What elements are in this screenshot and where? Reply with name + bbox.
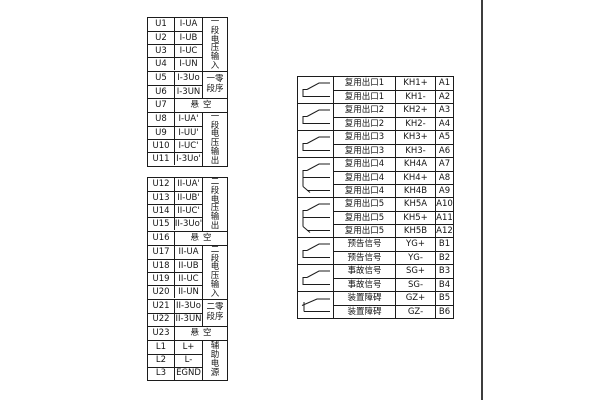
terminal-id-cell: B2: [435, 252, 453, 264]
terminal-row: L3EGND: [148, 367, 202, 380]
normally-open-contact-icon: [298, 131, 333, 157]
signal-code-cell: SG+: [395, 265, 435, 278]
signal-name-cell: I-UC': [174, 140, 202, 152]
signal-label-cell: 复用出口3: [333, 145, 395, 157]
terminal-row: U12II-UA': [148, 178, 202, 191]
group-label: 辅助电源: [210, 342, 220, 377]
terminal-group: U23悬空: [148, 326, 227, 340]
signal-name-cell: I-3UN: [174, 86, 202, 98]
output-row: 复用出口3KH3+A5: [333, 131, 453, 144]
terminal-id-cell: U8: [148, 113, 174, 126]
signal-name-cell: I-UA': [174, 113, 202, 126]
signal-name-cell: 悬空: [174, 232, 227, 245]
output-group: 复用出口3KH3+A5复用出口3KH3-A6: [298, 130, 453, 157]
signal-label-cell: 复用出口4: [333, 158, 395, 171]
output-row: 复用出口5KH5+A11: [333, 211, 453, 224]
output-rows: 装置障碍GZ+B5装置障碍GZ-B6: [333, 292, 453, 318]
signal-label-cell: 复用出口2: [333, 118, 395, 130]
normally-open-contact-icon: [298, 77, 333, 103]
terminal-id-cell: U3: [148, 45, 174, 57]
terminal-row: U9I-UU': [148, 126, 202, 139]
terminal-row: U10I-UC': [148, 139, 202, 152]
group-label: 一段电压输入: [210, 18, 220, 71]
terminal-row: U23悬空: [148, 327, 227, 340]
signal-name-cell: I-UB: [174, 32, 202, 44]
output-group: 事故信号SG+B3事故信号SG-B4: [298, 264, 453, 291]
relay-contact-symbol-cell: [298, 238, 333, 264]
normally-open-contact-icon: [298, 238, 333, 264]
terminal-group: U8I-UA'U9I-UU'U10I-UC'U11I-3Uo'一段电压输出: [148, 112, 227, 166]
signal-code-cell: KH3-: [395, 145, 435, 157]
signal-label-cell: 复用出口5: [333, 212, 395, 224]
terminal-id-cell: U5: [148, 72, 174, 85]
terminal-group: U21II-3UoU22II-3UN二零 段序: [148, 299, 227, 326]
signal-code-cell: KH1-: [395, 91, 435, 103]
terminal-row: L2L-: [148, 354, 202, 367]
signal-code-cell: KH2-: [395, 118, 435, 130]
signal-name-cell: I-3Uo: [174, 72, 202, 85]
terminal-id-cell: B5: [435, 292, 453, 305]
terminal-id-cell: A1: [435, 77, 453, 90]
changeover-contact-icon: [298, 158, 333, 197]
terminal-id-cell: U16: [148, 232, 174, 245]
terminal-row: U15II-3Uo': [148, 217, 202, 230]
terminal-id-cell: U11: [148, 153, 174, 165]
terminal-row: U3I-UC: [148, 44, 202, 57]
group-label: 二段电压输入: [210, 246, 220, 299]
group-label: 二段电压输出: [210, 178, 220, 231]
output-row: 事故信号SG+B3: [333, 265, 453, 278]
signal-label-cell: 预告信号: [333, 252, 395, 264]
output-group: 装置障碍GZ+B5装置障碍GZ-B6: [298, 291, 453, 318]
terminal-id-cell: A11: [435, 212, 453, 224]
output-row: 复用出口5KH5BA12: [333, 224, 453, 237]
output-row: 事故信号SG-B4: [333, 278, 453, 291]
terminal-id-cell: B6: [435, 306, 453, 318]
terminal-row: U5I-3Uo: [148, 72, 202, 85]
terminal-rows: U21II-3UoU22II-3UN: [148, 300, 202, 326]
voltage-terminal-table-2: U12II-UA'U13II-UB'U14II-UC'U15II-3Uo'二段电…: [147, 177, 228, 381]
terminal-group: U1I-UAU2I-UBU3I-UCU4I-UN一段电压输入: [148, 18, 227, 71]
terminal-id-cell: U12: [148, 178, 174, 191]
terminal-id-cell: L2: [148, 355, 174, 367]
terminal-id-cell: A9: [435, 185, 453, 197]
terminal-id-cell: U9: [148, 127, 174, 139]
output-rows: 复用出口4KH4AA7复用出口4KH4+A8复用出口4KH4BA9: [333, 158, 453, 197]
terminal-rows: L1L+L2L-L3EGND: [148, 341, 202, 380]
signal-name-cell: II-UN: [174, 286, 202, 298]
output-rows: 事故信号SG+B3事故信号SG-B4: [333, 265, 453, 291]
signal-name-cell: II-UA: [174, 246, 202, 259]
terminal-id-cell: U7: [148, 99, 174, 112]
terminal-rows: U5I-3UoU6I-3UN: [148, 72, 202, 98]
signal-code-cell: GZ-: [395, 306, 435, 318]
terminal-row: U11I-3Uo': [148, 152, 202, 165]
group-label-cell: 一段电压输入: [202, 18, 227, 71]
normally-open-contact-icon: [298, 104, 333, 130]
terminal-id-cell: A4: [435, 118, 453, 130]
terminal-id-cell: U20: [148, 286, 174, 298]
terminal-id-cell: A6: [435, 145, 453, 157]
signal-code-cell: KH5A: [395, 198, 435, 211]
terminal-id-cell: B1: [435, 238, 453, 251]
terminal-row: U6I-3UN: [148, 85, 202, 98]
signal-name-cell: L+: [174, 341, 202, 354]
terminal-id-cell: U23: [148, 327, 174, 340]
output-group: 复用出口4KH4AA7复用出口4KH4+A8复用出口4KH4BA9: [298, 157, 453, 197]
terminal-rows: U23悬空: [148, 327, 227, 340]
output-row: 复用出口4KH4BA9: [333, 184, 453, 197]
output-rows: 复用出口5KH5AA10复用出口5KH5+A11复用出口5KH5BA12: [333, 198, 453, 237]
signal-name-cell: II-UB': [174, 192, 202, 204]
relay-contact-symbol-cell: [298, 77, 333, 103]
output-row: 复用出口2KH2+A3: [333, 104, 453, 117]
output-group: 复用出口2KH2+A3复用出口2KH2-A4: [298, 103, 453, 130]
group-label-cell: 二段电压输出: [202, 178, 227, 231]
signal-code-cell: KH4B: [395, 185, 435, 197]
signal-label-cell: 复用出口1: [333, 91, 395, 103]
terminal-row: L1L+: [148, 341, 202, 354]
signal-code-cell: YG+: [395, 238, 435, 251]
terminal-id-cell: A5: [435, 131, 453, 144]
terminal-group: U12II-UA'U13II-UB'U14II-UC'U15II-3Uo'二段电…: [148, 178, 227, 231]
signal-name-cell: I-UA: [174, 18, 202, 31]
terminal-row: U14II-UC': [148, 204, 202, 217]
signal-name-cell: II-3Uo': [174, 218, 202, 230]
relay-contact-symbol-cell: [298, 198, 333, 237]
signal-label-cell: 复用出口1: [333, 77, 395, 90]
terminal-group: U16悬空: [148, 231, 227, 245]
signal-name-cell: 悬空: [174, 327, 227, 340]
terminal-rows: U1I-UAU2I-UBU3I-UCU4I-UN: [148, 18, 202, 71]
terminal-group: U7悬空: [148, 98, 227, 112]
terminal-rows: U12II-UA'U13II-UB'U14II-UC'U15II-3Uo': [148, 178, 202, 231]
group-label-cell: 一段电压输出: [202, 113, 227, 166]
signal-code-cell: KH5+: [395, 212, 435, 224]
group-label: 二零 段序: [206, 303, 223, 322]
signal-name-cell: I-3Uo': [174, 153, 202, 165]
terminal-id-cell: U15: [148, 218, 174, 230]
group-label: 一零 段序: [206, 75, 223, 94]
signal-name-cell: EGND: [174, 368, 202, 380]
signal-label-cell: 装置障碍: [333, 306, 395, 318]
terminal-row: U8I-UA': [148, 113, 202, 126]
output-rows: 预告信号YG+B1预告信号YG-B2: [333, 238, 453, 264]
normally-closed-contact-icon: [298, 292, 333, 318]
relay-contact-symbol-cell: [298, 265, 333, 291]
relay-contact-symbol-cell: [298, 131, 333, 157]
signal-label-cell: 复用出口5: [333, 198, 395, 211]
terminal-row: U2I-UB: [148, 31, 202, 44]
signal-name-cell: II-UB: [174, 260, 202, 272]
relay-contact-symbol-cell: [298, 292, 333, 318]
terminal-id-cell: L3: [148, 368, 174, 380]
output-rows: 复用出口1KH1+A1复用出口1KH1-A2: [333, 77, 453, 103]
terminal-id-cell: B3: [435, 265, 453, 278]
terminal-id-cell: U10: [148, 140, 174, 152]
group-label-cell: 二零 段序: [202, 300, 227, 326]
signal-name-cell: 悬空: [174, 99, 227, 112]
signal-label-cell: 复用出口4: [333, 172, 395, 184]
signal-name-cell: I-UU': [174, 127, 202, 139]
terminal-row: U18II-UB: [148, 259, 202, 272]
group-label: 一段电压输出: [210, 113, 220, 166]
signal-name-cell: I-UN: [174, 58, 202, 70]
signal-label-cell: 事故信号: [333, 279, 395, 291]
terminal-id-cell: U19: [148, 273, 174, 285]
terminal-row: U16悬空: [148, 232, 227, 245]
signal-name-cell: II-UA': [174, 178, 202, 191]
terminal-id-cell: U2: [148, 32, 174, 44]
output-group: 复用出口1KH1+A1复用出口1KH1-A2: [298, 77, 453, 103]
terminal-id-cell: U22: [148, 314, 174, 326]
terminal-group: U17II-UAU18II-UBU19II-UCU20II-UN二段电压输入: [148, 245, 227, 299]
terminal-id-cell: U1: [148, 18, 174, 31]
relay-contact-symbol-cell: [298, 104, 333, 130]
terminal-id-cell: A2: [435, 91, 453, 103]
output-rows: 复用出口2KH2+A3复用出口2KH2-A4: [333, 104, 453, 130]
output-row: 预告信号YG-B2: [333, 251, 453, 264]
normally-open-contact-icon: [298, 265, 333, 291]
terminal-row: U22II-3UN: [148, 313, 202, 326]
terminal-group: L1L+L2L-L3EGND辅助电源: [148, 340, 227, 380]
group-label-cell: 一零 段序: [202, 72, 227, 98]
terminal-rows: U7悬空: [148, 99, 227, 112]
terminal-id-cell: A3: [435, 104, 453, 117]
signal-label-cell: 复用出口3: [333, 131, 395, 144]
output-row: 装置障碍GZ+B5: [333, 292, 453, 305]
signal-name-cell: II-UC': [174, 205, 202, 217]
output-row: 复用出口1KH1-A2: [333, 90, 453, 103]
terminal-row: U21II-3Uo: [148, 300, 202, 313]
signal-label-cell: 装置障碍: [333, 292, 395, 305]
group-label-cell: 辅助电源: [202, 341, 227, 380]
signal-code-cell: KH1+: [395, 77, 435, 90]
terminal-rows: U8I-UA'U9I-UU'U10I-UC'U11I-3Uo': [148, 113, 202, 166]
output-row: 复用出口2KH2-A4: [333, 117, 453, 130]
changeover-contact-icon: [298, 198, 333, 237]
group-label-cell: 二段电压输入: [202, 246, 227, 299]
signal-code-cell: KH2+: [395, 104, 435, 117]
terminal-row: U7悬空: [148, 99, 227, 112]
terminal-id-cell: U14: [148, 205, 174, 217]
terminal-row: U4I-UN: [148, 57, 202, 70]
output-row: 复用出口5KH5AA10: [333, 198, 453, 211]
output-row: 复用出口4KH4AA7: [333, 158, 453, 171]
terminal-id-cell: U18: [148, 260, 174, 272]
signal-code-cell: GZ+: [395, 292, 435, 305]
signal-name-cell: II-3Uo: [174, 300, 202, 313]
signal-label-cell: 预告信号: [333, 238, 395, 251]
output-group: 预告信号YG+B1预告信号YG-B2: [298, 237, 453, 264]
signal-label-cell: 事故信号: [333, 265, 395, 278]
terminal-id-cell: A7: [435, 158, 453, 171]
signal-code-cell: KH4A: [395, 158, 435, 171]
voltage-terminal-table-1: U1I-UAU2I-UBU3I-UCU4I-UN一段电压输入U5I-3UoU6I…: [147, 17, 228, 167]
terminal-id-cell: A10: [435, 198, 453, 211]
terminal-id-cell: L1: [148, 341, 174, 354]
output-row: 复用出口1KH1+A1: [333, 77, 453, 90]
terminal-id-cell: B4: [435, 279, 453, 291]
terminal-row: U19II-UC: [148, 272, 202, 285]
signal-name-cell: L-: [174, 355, 202, 367]
terminal-id-cell: A12: [435, 225, 453, 237]
output-row: 复用出口3KH3-A6: [333, 144, 453, 157]
signal-code-cell: KH5B: [395, 225, 435, 237]
terminal-rows: U17II-UAU18II-UBU19II-UCU20II-UN: [148, 246, 202, 299]
terminal-id-cell: U6: [148, 86, 174, 98]
signal-name-cell: I-UC: [174, 45, 202, 57]
output-row: 复用出口4KH4+A8: [333, 171, 453, 184]
signal-name-cell: II-UC: [174, 273, 202, 285]
page-edge-line: [481, 0, 483, 400]
terminal-id-cell: U4: [148, 58, 174, 70]
terminal-group: U5I-3UoU6I-3UN一零 段序: [148, 71, 227, 98]
signal-code-cell: KH3+: [395, 131, 435, 144]
signal-label-cell: 复用出口5: [333, 225, 395, 237]
signal-code-cell: SG-: [395, 279, 435, 291]
signal-name-cell: II-3UN: [174, 314, 202, 326]
terminal-row: U20II-UN: [148, 285, 202, 298]
output-rows: 复用出口3KH3+A5复用出口3KH3-A6: [333, 131, 453, 157]
terminal-id-cell: U21: [148, 300, 174, 313]
terminal-id-cell: U13: [148, 192, 174, 204]
output-group: 复用出口5KH5AA10复用出口5KH5+A11复用出口5KH5BA12: [298, 197, 453, 237]
output-signal-terminal-table: 复用出口1KH1+A1复用出口1KH1-A2复用出口2KH2+A3复用出口2KH…: [297, 76, 454, 319]
terminal-row: U13II-UB': [148, 191, 202, 204]
terminal-row: U1I-UA: [148, 18, 202, 31]
signal-code-cell: YG-: [395, 252, 435, 264]
signal-code-cell: KH4+: [395, 172, 435, 184]
output-row: 预告信号YG+B1: [333, 238, 453, 251]
terminal-id-cell: A8: [435, 172, 453, 184]
relay-contact-symbol-cell: [298, 158, 333, 197]
signal-label-cell: 复用出口4: [333, 185, 395, 197]
signal-label-cell: 复用出口2: [333, 104, 395, 117]
terminal-rows: U16悬空: [148, 232, 227, 245]
terminal-id-cell: U17: [148, 246, 174, 259]
terminal-row: U17II-UA: [148, 246, 202, 259]
output-row: 装置障碍GZ-B6: [333, 305, 453, 318]
